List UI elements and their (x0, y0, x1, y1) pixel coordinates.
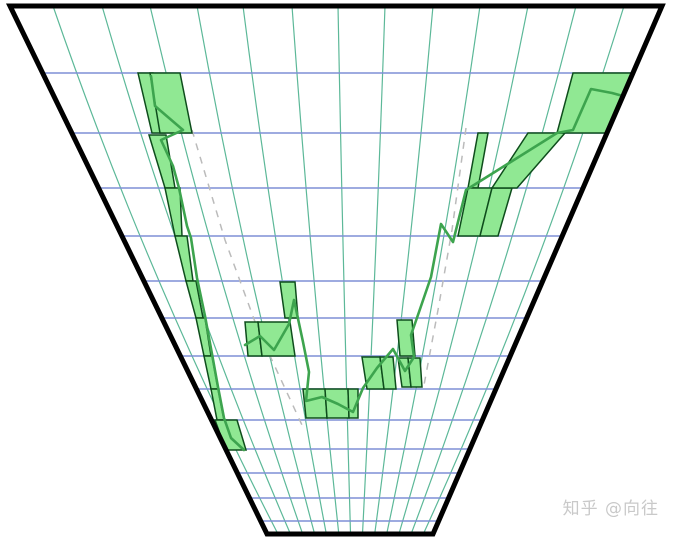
watermark-text: 知乎 @向往 (563, 499, 659, 519)
grid-vertical-line (243, 6, 326, 534)
price-line-segment (245, 89, 634, 412)
grid-vertical-line (338, 6, 351, 534)
candle-body (175, 236, 193, 281)
chart-canvas: 知乎 @向往 (0, 0, 675, 543)
candles (138, 73, 633, 450)
grid-vertical-line (362, 6, 385, 534)
dashed-guides (192, 128, 466, 425)
candle-body (468, 133, 488, 188)
grid-vertical-line (411, 6, 576, 534)
grid-vertical-line (292, 6, 339, 534)
grid-vertical-line (197, 6, 315, 534)
watermark: 知乎 @向往 (563, 494, 659, 519)
funnel-frame (10, 6, 662, 534)
dashed-guide-right-channel (424, 128, 466, 385)
funnel-chart (0, 0, 675, 543)
grid-vertical-line (399, 6, 528, 534)
grid-vertical-line (375, 6, 433, 534)
